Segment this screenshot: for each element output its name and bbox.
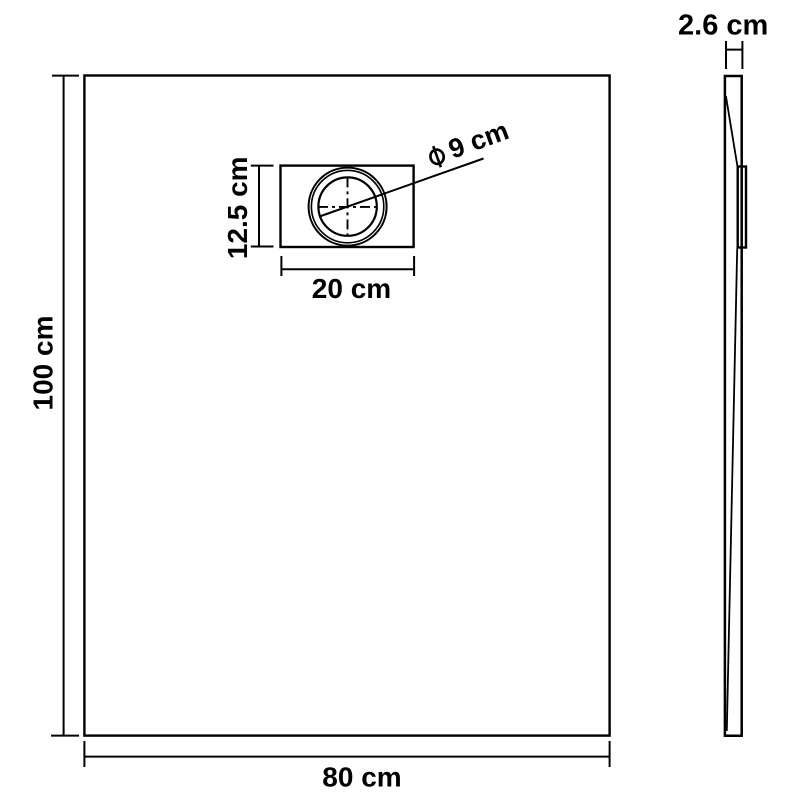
svg-text:80 cm: 80 cm [322, 762, 401, 793]
svg-text:9 cm: 9 cm [445, 115, 513, 164]
svg-text:2.6 cm: 2.6 cm [678, 10, 768, 42]
svg-text:12.5 cm: 12.5 cm [222, 156, 253, 259]
svg-text:20 cm: 20 cm [312, 273, 391, 304]
svg-text:100 cm: 100 cm [28, 316, 59, 411]
